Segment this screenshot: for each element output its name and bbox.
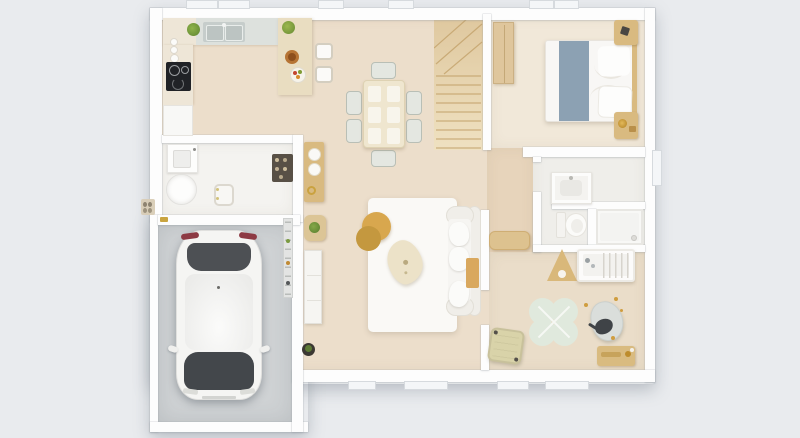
garage-shadow xyxy=(150,215,308,432)
floor-plan-canvas xyxy=(0,0,800,438)
staircase xyxy=(434,18,483,150)
shoes-pair xyxy=(143,208,147,213)
shoes-pair xyxy=(143,202,147,207)
stair-treads xyxy=(434,18,483,150)
